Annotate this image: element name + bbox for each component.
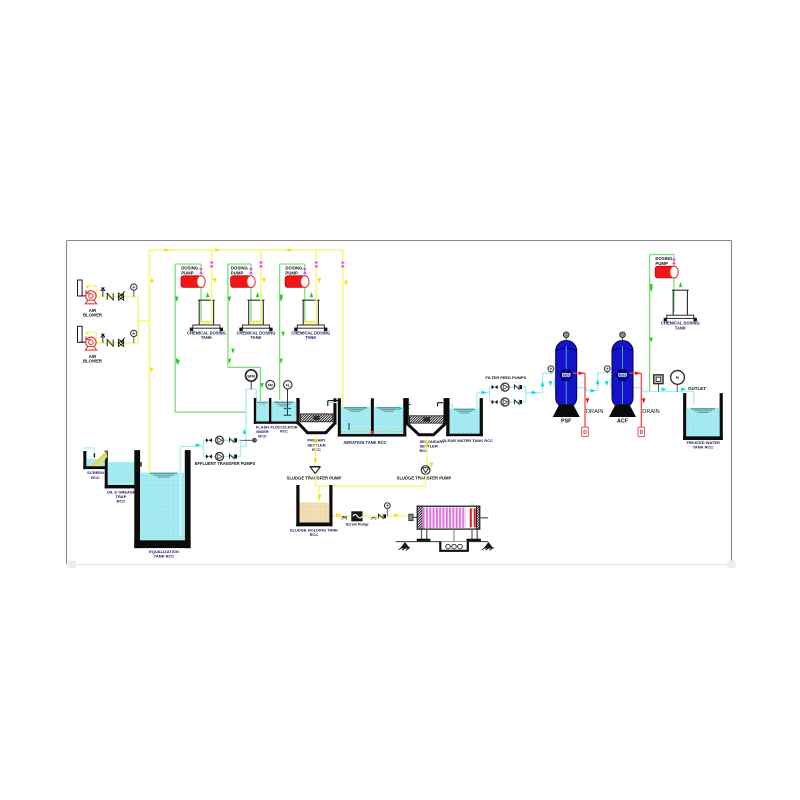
svg-text:PUMP: PUMP <box>285 271 298 276</box>
svg-text:BLOWER: BLOWER <box>83 313 103 318</box>
svg-text:TANK: TANK <box>201 335 212 340</box>
svg-text:RCC: RCC <box>312 447 321 452</box>
svg-text:RCC: RCC <box>117 499 126 504</box>
svg-text:CLEAR WATER TANK RCC: CLEAR WATER TANK RCC <box>442 438 493 443</box>
svg-text:BLOWER: BLOWER <box>83 359 103 364</box>
svg-text:TANK: TANK <box>675 325 686 330</box>
svg-text:ACF: ACF <box>617 419 629 425</box>
svg-text:FL: FL <box>286 383 290 387</box>
svg-text:D: D <box>583 430 587 436</box>
svg-text:BWS: BWS <box>619 373 626 377</box>
svg-text:SLUDGE TRANSFER PUMP: SLUDGE TRANSFER PUMP <box>287 475 342 480</box>
svg-text:OUTLET: OUTLET <box>688 386 706 391</box>
svg-text:RCC: RCC <box>258 433 267 438</box>
svg-text:PUMP: PUMP <box>655 261 668 266</box>
svg-text:RCC: RCC <box>310 532 319 537</box>
svg-text:TANK: TANK <box>305 335 316 340</box>
svg-text:Screw Pump: Screw Pump <box>346 523 369 527</box>
svg-text:FILTER FEED PUMPS: FILTER FEED PUMPS <box>485 375 526 380</box>
svg-text:PI: PI <box>676 376 679 380</box>
svg-text:AERATION TANK RCC: AERATION TANK RCC <box>343 440 386 445</box>
svg-text:PUMP: PUMP <box>181 271 194 276</box>
svg-text:DRAIN: DRAIN <box>642 409 659 415</box>
svg-text:RCC: RCC <box>91 475 100 480</box>
svg-text:DRAIN: DRAIN <box>586 409 603 415</box>
svg-text:TANK: TANK <box>250 335 261 340</box>
svg-text:BWS: BWS <box>562 373 569 377</box>
svg-text:PSF: PSF <box>561 419 572 425</box>
svg-text:TANK RCC: TANK RCC <box>693 445 714 450</box>
svg-text:TANK RCC: TANK RCC <box>154 553 175 558</box>
svg-text:FM: FM <box>268 383 273 387</box>
svg-text:EFFLUENT TRANSFER PUMPS: EFFLUENT TRANSFER PUMPS <box>195 461 256 466</box>
svg-text:[M]: [M] <box>341 515 347 519</box>
svg-text:SLUDGE TRANSFER PUMP: SLUDGE TRANSFER PUMP <box>397 475 452 480</box>
svg-text:RCC: RCC <box>280 430 288 434</box>
svg-text:BFM: BFM <box>248 374 256 378</box>
svg-text:D: D <box>640 430 644 436</box>
svg-text:PUMP: PUMP <box>231 271 244 276</box>
